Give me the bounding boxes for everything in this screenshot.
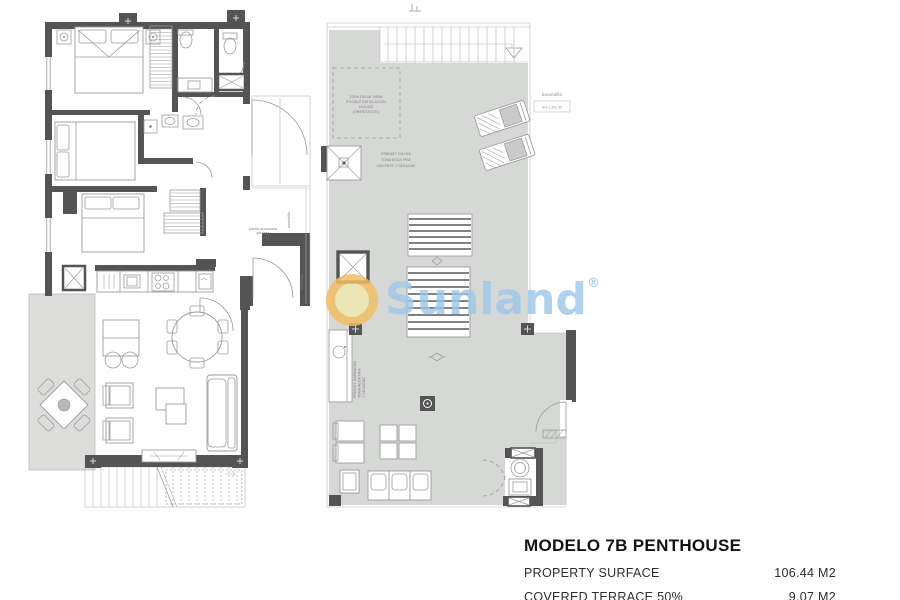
window — [45, 57, 52, 252]
bedroom1-bed — [57, 27, 160, 93]
outdoor-sofa — [368, 471, 431, 500]
armchair — [103, 418, 133, 443]
side-table — [340, 470, 359, 493]
railing-label: barandilla — [542, 92, 563, 97]
watermark-brand: Sunland — [385, 278, 587, 322]
sunland-logo-icon — [326, 274, 378, 326]
bbq-note-line: PREINST. BARBACOA — [353, 361, 357, 398]
apartment-floorplan: puerta acorazada gardesa barandilla bara… — [22, 10, 310, 507]
armchair — [103, 383, 133, 408]
watermark-registered-icon: ® — [587, 276, 600, 291]
bedroom2-bed — [55, 122, 135, 180]
shower-note-line: TOMA AGUA FRIA — [381, 158, 411, 162]
covered-terrace-value: 9.07 M2 — [789, 590, 836, 600]
zone-note-line: JACUZZI — [359, 105, 374, 109]
sofa — [207, 375, 237, 451]
railing-label-upper: barandilla — [287, 212, 291, 228]
wardrobe — [164, 190, 203, 233]
property-surface-value: 106.44 M2 — [774, 566, 836, 580]
coffee-table — [156, 388, 186, 424]
terrace-area — [29, 294, 95, 470]
shower-note-line: PREINST. DUCHA — [381, 152, 411, 156]
bbq-note-line: Y DESAGUE — [362, 377, 366, 398]
title-block: MODELO 7B PENTHOUSE PROPERTY SURFACE 106… — [524, 536, 836, 600]
tv-bench — [142, 450, 196, 462]
plan-title: MODELO 7B PENTHOUSE — [524, 536, 836, 556]
entry-door-label2: gardesa — [257, 231, 270, 235]
ac-unit-text: A/A 1.30x.35 — [542, 106, 562, 110]
bbq-note-line: TOMA AGUA FRIA — [358, 368, 362, 398]
section-mark-icon — [409, 4, 421, 11]
wardrobe — [150, 26, 172, 88]
bedroom3-bed — [82, 194, 144, 252]
zone-note-line: POSIBLE INSTALACION — [346, 100, 386, 104]
solarium-floorplan: ZONA DELIM. PARA POSIBLE INSTALACION JAC… — [321, 4, 576, 507]
covered-terrace-row: COVERED TERRACE 50% 9.07 M2 — [524, 590, 836, 600]
bathroom2-fixtures — [144, 115, 203, 133]
property-surface-label: PROPERTY SURFACE — [524, 566, 660, 580]
kitchen-island — [103, 320, 139, 368]
zone-note-line: ZONA DELIM. PARA — [349, 95, 383, 99]
sunland-watermark: Sunland ® — [326, 274, 600, 326]
drain-icon — [420, 396, 435, 411]
property-surface-row: PROPERTY SURFACE 106.44 M2 — [524, 566, 836, 580]
ac-unit-label: A/A 1.30x.35 — [534, 101, 570, 112]
railing-label-lower: barandilla — [300, 274, 304, 290]
covered-terrace-label: COVERED TERRACE 50% — [524, 590, 683, 600]
solarium-stair — [384, 27, 522, 62]
shower-note-line: CALIENTE Y DESAGÜE — [377, 164, 417, 168]
guest-wc-fixtures — [218, 33, 245, 90]
dining-table — [167, 306, 228, 368]
exterior-stair-deck — [85, 467, 245, 507]
bathroom1-fixtures — [178, 30, 212, 92]
zone-note-line: (ORIENTATIVO) — [353, 110, 379, 114]
floorplan-page: puerta acorazada gardesa barandilla bara… — [0, 0, 900, 600]
